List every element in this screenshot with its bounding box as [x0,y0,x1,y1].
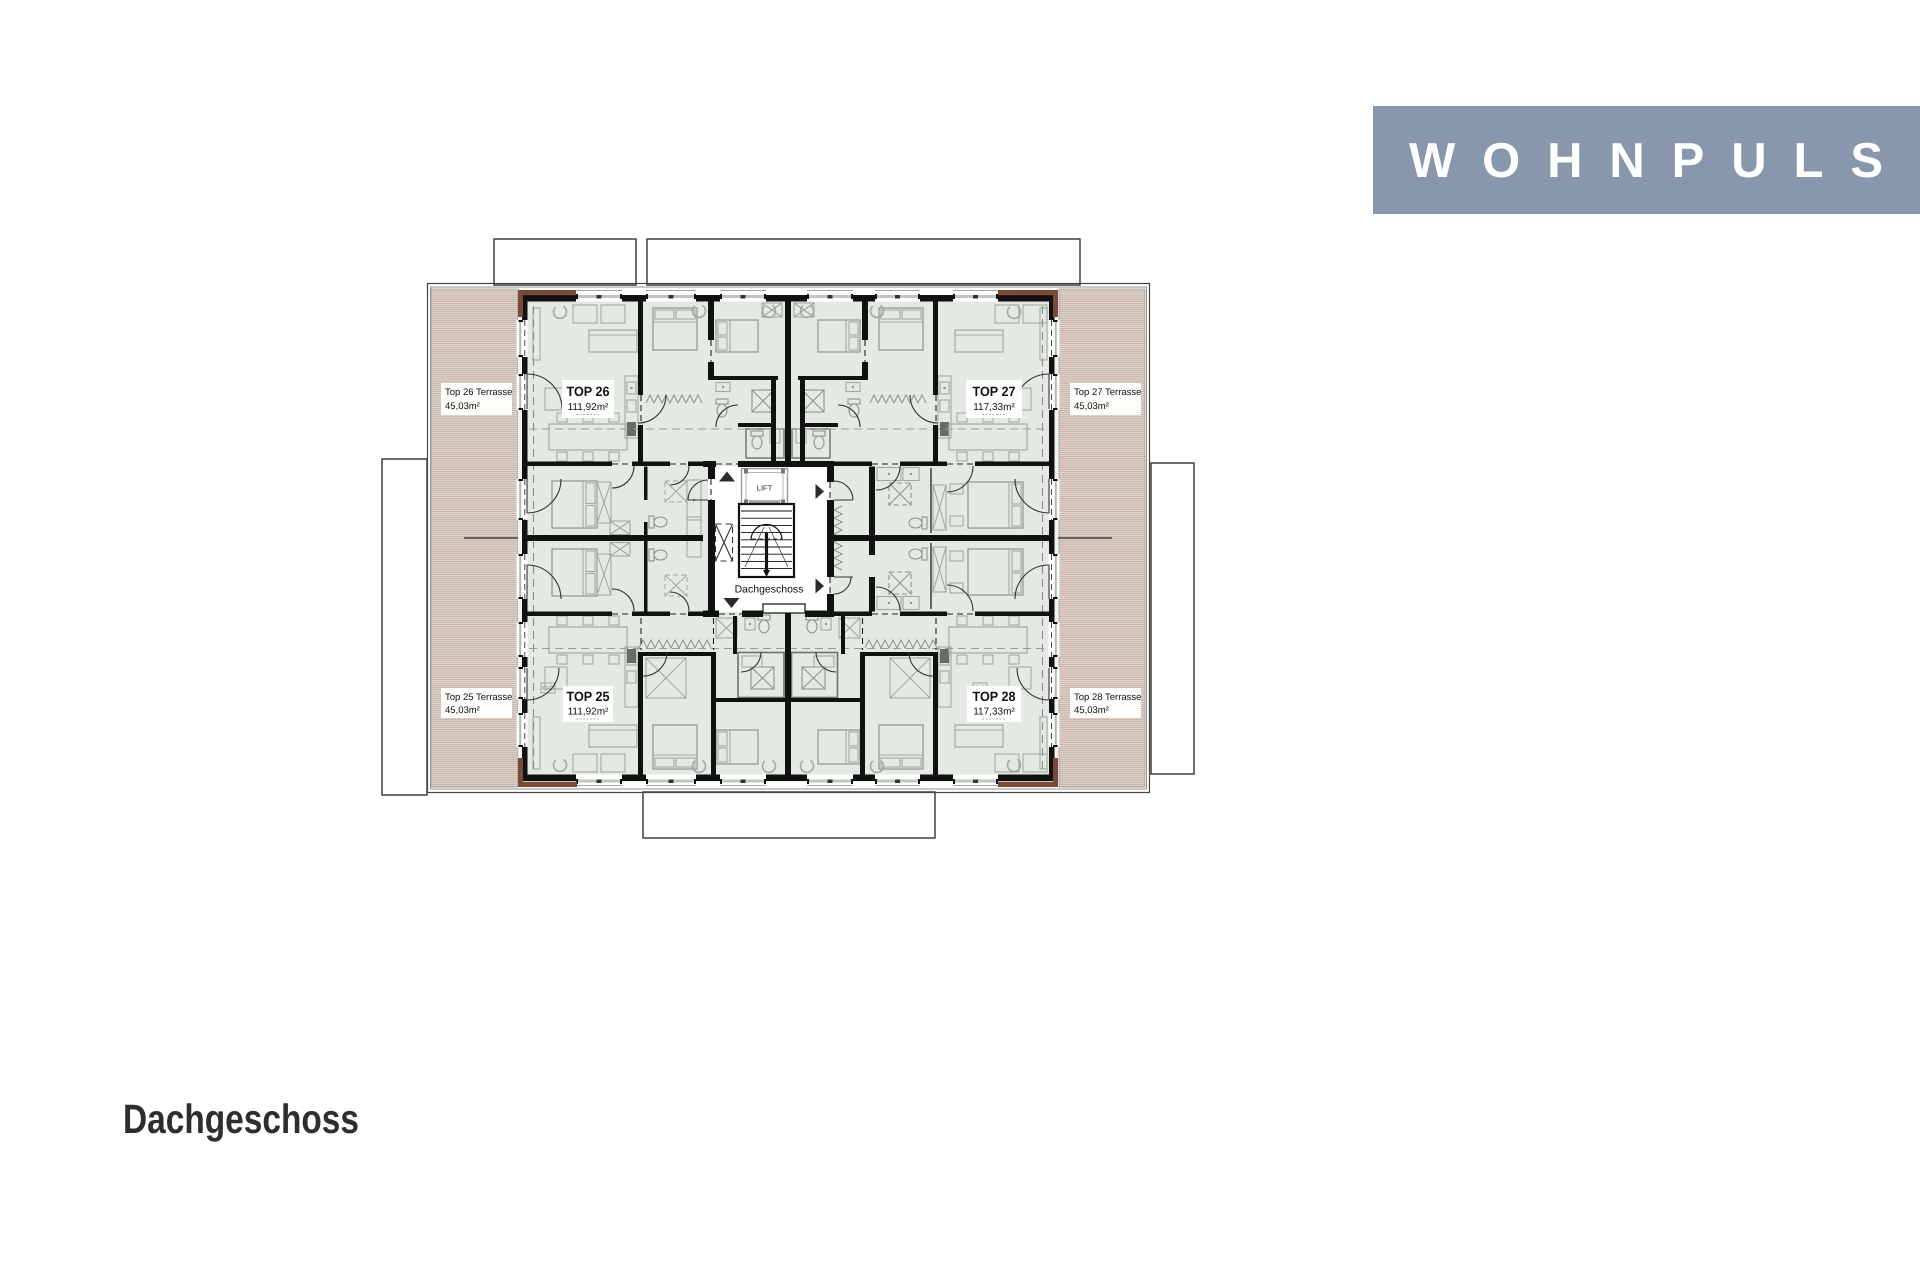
svg-text:TOP 27: TOP 27 [973,384,1016,399]
svg-text:TOP 26: TOP 26 [567,384,610,399]
svg-text:117,33m²: 117,33m² [973,707,1015,718]
svg-text:Top 27 Terrasse: Top 27 Terrasse [1074,387,1141,398]
svg-text:45,03m²: 45,03m² [445,705,480,716]
svg-text:Dachgeschoss: Dachgeschoss [735,584,804,596]
svg-text:Top 26 Terrasse: Top 26 Terrasse [445,387,512,398]
svg-text:111,92m²: 111,92m² [568,402,609,413]
svg-text:Top 25 Terrasse: Top 25 Terrasse [445,692,512,703]
svg-text:TOP 28: TOP 28 [973,689,1016,704]
svg-text:45,03m²: 45,03m² [1074,705,1109,716]
svg-text:Dachgeschoss: Dachgeschoss [123,1096,359,1142]
svg-text:45,03m²: 45,03m² [1074,401,1109,412]
svg-text:45,03m²: 45,03m² [445,401,480,412]
svg-text:TOP 25: TOP 25 [567,689,610,704]
svg-text:117,33m²: 117,33m² [973,402,1015,413]
svg-text:111,92m²: 111,92m² [568,707,609,718]
svg-text:Top 28 Terrasse: Top 28 Terrasse [1074,692,1141,703]
svg-text:LIFT: LIFT [757,484,773,493]
